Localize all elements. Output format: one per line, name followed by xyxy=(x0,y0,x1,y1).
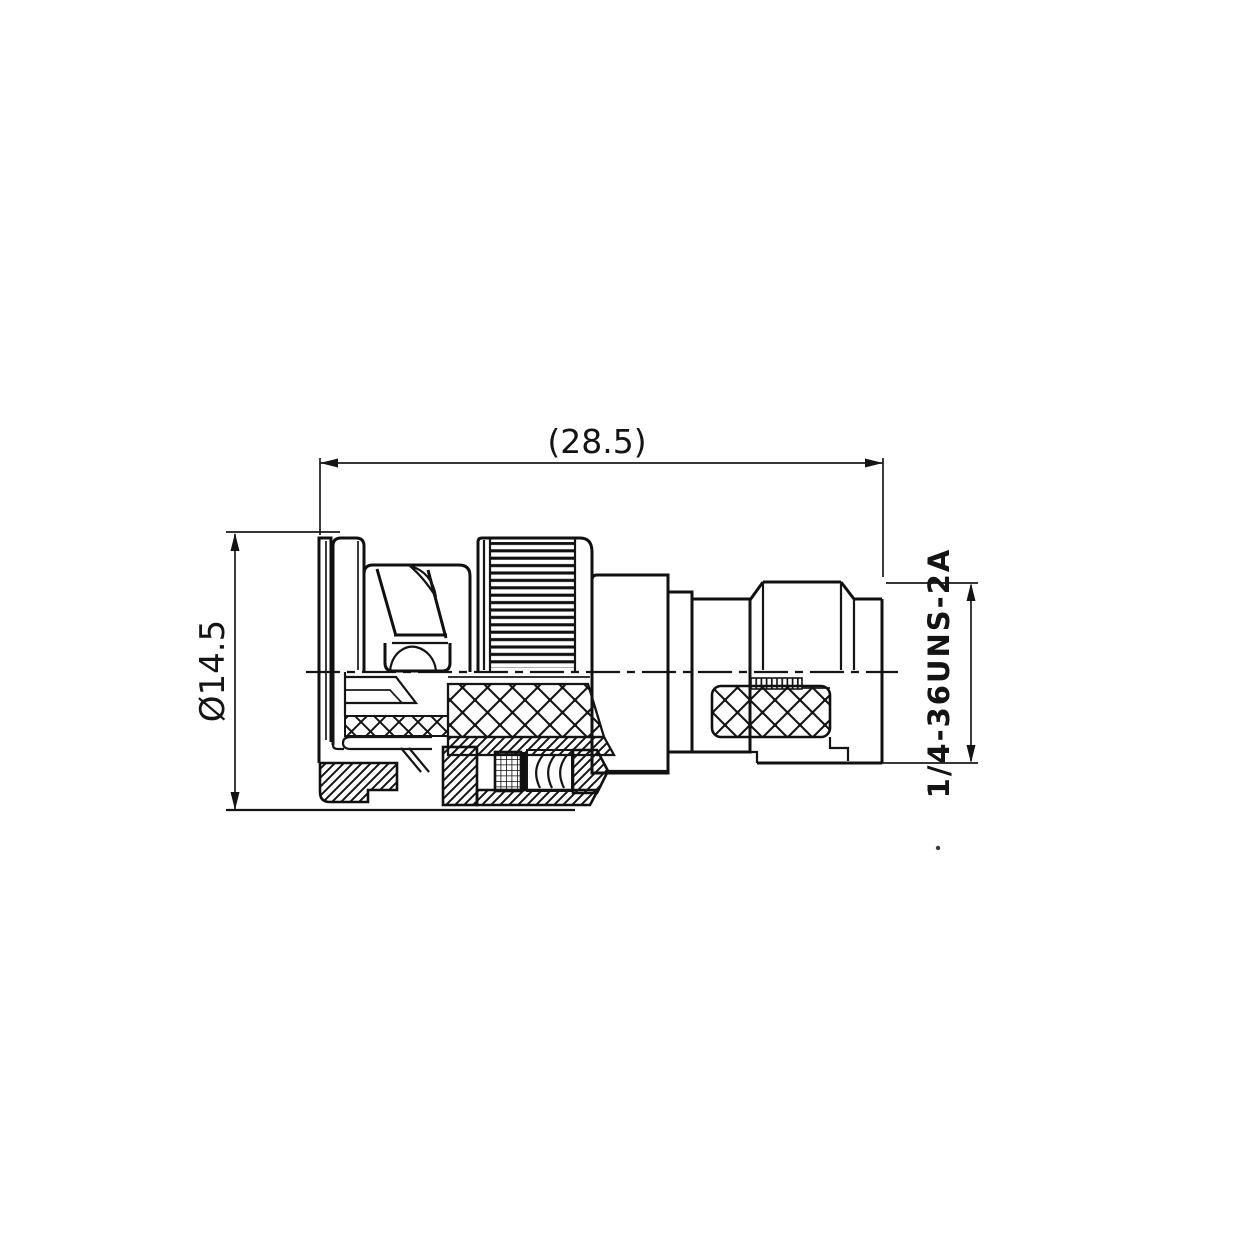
thread-spec-label: 1/4-36UNS-2A xyxy=(922,548,956,799)
connector-drawing: (28.5) Ø14.5 1/4-36UNS-2A xyxy=(0,0,1250,1250)
arrowhead-right xyxy=(865,459,883,468)
crimp-section xyxy=(443,747,668,805)
knurl-ring xyxy=(478,538,592,672)
nut-section xyxy=(320,672,448,802)
sma-section xyxy=(712,678,882,763)
arrowhead-down xyxy=(231,792,240,810)
diameter-dim-label: Ø14.5 xyxy=(193,620,233,722)
dimension-length: (28.5) xyxy=(320,422,883,577)
bayonet-slot xyxy=(377,566,450,671)
drawing-sheet: (28.5) Ø14.5 1/4-36UNS-2A xyxy=(0,0,1250,1250)
arrowhead-left xyxy=(320,459,338,468)
length-dim-label: (28.5) xyxy=(547,422,646,461)
arrowhead-down xyxy=(967,745,976,763)
insulator-section xyxy=(448,677,614,755)
arrowhead-up xyxy=(967,583,976,601)
arrowhead-up xyxy=(231,533,240,551)
print-dot xyxy=(936,846,940,850)
